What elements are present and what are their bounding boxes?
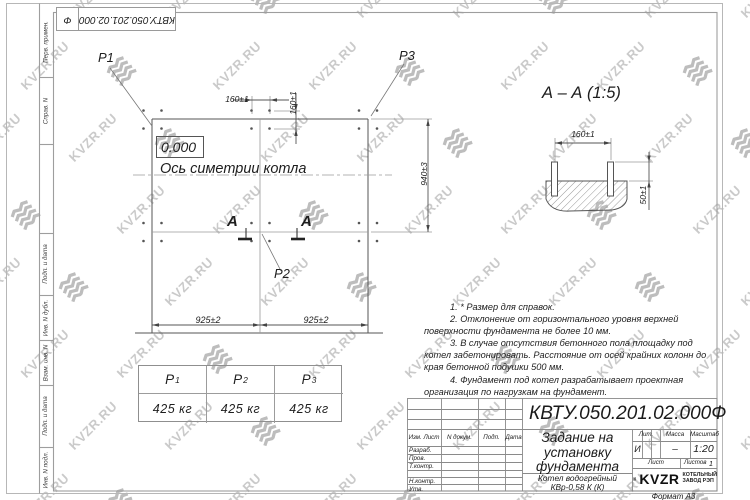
tb-header-n-dokum: N докум.	[441, 429, 478, 446]
drawing-title: Задание на установку фундамента	[523, 431, 632, 475]
tb-row-tkontr: Т.контр.	[409, 463, 434, 470]
notes-block: 1. * Размер для справок. 2. Отклонение о…	[424, 301, 722, 398]
load-point-p1-label: Р1	[98, 50, 114, 65]
tb-mass-label: Масса	[660, 429, 690, 441]
boiler-symmetry-axis-label: Ось симетрии котла	[160, 161, 306, 177]
section-view-title: А – А (1:5)	[542, 84, 621, 103]
dim-160-side: 160±1	[288, 87, 298, 119]
kvzr-logo-icon	[633, 471, 636, 487]
dim-925-left: 925±2	[184, 315, 232, 325]
document-suffix: Ф	[711, 403, 726, 425]
note-4: 4. Фундамент под котел разрабатывает про…	[424, 374, 722, 398]
kvzr-brand-subtext: КОТЕЛЬНЫЙ ЗАВОД РЭП	[683, 473, 717, 485]
top-reference-number: КВТУ.050.201.02.000	[79, 8, 175, 30]
load-table-header-p1: Р1	[139, 366, 207, 394]
strip-label-inv-dubl: Инв. N дубл.	[40, 295, 52, 340]
plan-dim-arrows	[152, 98, 430, 326]
tb-row-razrab: Разраб.	[409, 447, 431, 454]
drawing-sheet: KVZR.RUKVZR.RUKVZR.RUKVZR.RUKVZR.RUKVZR.…	[0, 0, 750, 500]
strip-label-podp-data-1: Подп. и дата	[40, 233, 52, 295]
top-reference-suffix: Ф	[57, 8, 79, 30]
load-point-p2-label: Р2	[274, 266, 290, 281]
kvzr-brand-text: KVZR	[639, 471, 679, 487]
dim-925-right: 925±2	[292, 315, 340, 325]
tb-lit-value: И	[632, 441, 643, 458]
dim-160-top: 160±1	[217, 94, 257, 104]
load-table-value-p1: 425 кг	[139, 394, 207, 423]
section-cut-marks	[238, 228, 305, 239]
load-table: Р1 Р2 Р3 425 кг 425 кг 425 кг	[138, 365, 342, 422]
strip-label-sprav-n: Справ. N	[40, 77, 52, 144]
plan-axes	[133, 96, 432, 333]
format-label: Формат А3	[630, 492, 717, 500]
note-3: 3. В случае отсутствия бетонного пола пл…	[424, 337, 722, 373]
section-dim-50: 50±1	[638, 179, 648, 211]
document-number-cell: КВТУ.050.201.02.000 Ф	[523, 399, 731, 428]
load-table-header-p3: Р3	[275, 366, 343, 394]
load-table-value-p3: 425 кг	[275, 394, 343, 423]
tb-lit-label: Лит.	[632, 429, 660, 441]
section-dim-160: 160±1	[563, 129, 603, 139]
section-letter-left: А	[227, 213, 238, 230]
tb-scale-label: Масштаб	[690, 429, 717, 441]
section-letter-right: А	[301, 213, 312, 230]
dim-940: 940±3	[419, 154, 429, 194]
tb-header-data: Дата	[505, 429, 522, 446]
strip-label-podp-data-2: Подп. и дата	[40, 385, 52, 447]
tb-mass-value: –	[660, 441, 690, 458]
tb-header-izm-list: Изм. Лист	[407, 429, 441, 446]
strip-label-inv-podl: Инв. N подл.	[40, 447, 52, 492]
section-view-linework	[546, 138, 653, 211]
tb-row-prov: Пров.	[409, 455, 425, 462]
load-table-value-p2: 425 кг	[207, 394, 275, 423]
tb-sheets-value: 1	[709, 459, 713, 468]
tb-header-podp: Подп.	[478, 429, 505, 446]
level-mark: 0.000	[156, 136, 204, 158]
strip-label-vzam-inv: Взам. инв. N	[40, 340, 52, 385]
tb-scale-value: 1:20	[690, 441, 717, 458]
tb-row-nkontr: Н.контр.	[409, 478, 435, 485]
strip-label-perv-primen: Перв. примен.	[40, 6, 52, 77]
load-table-header-p2: Р2	[207, 366, 275, 394]
product-name: Котел водогрейный КВр-0,58 К (К)	[523, 474, 632, 492]
load-point-p3-label: Р3	[399, 48, 415, 63]
tb-sheets-label: Листов	[684, 460, 707, 466]
note-2: 2. Отклонение от горизонтального уровня …	[424, 313, 722, 337]
tb-sheet-label: Лист	[632, 458, 680, 468]
document-number: КВТУ.050.201.02.000	[529, 403, 711, 425]
top-reference-box: КВТУ.050.201.02.000 Ф	[56, 7, 176, 31]
note-1: 1. * Размер для справок.	[424, 301, 722, 313]
company-logo: KVZR КОТЕЛЬНЫЙ ЗАВОД РЭП	[633, 468, 717, 490]
plan-dim-lines	[152, 93, 428, 325]
tb-sheets-cell: Листов 1	[680, 458, 717, 468]
tb-row-utv: Утв.	[409, 486, 423, 493]
